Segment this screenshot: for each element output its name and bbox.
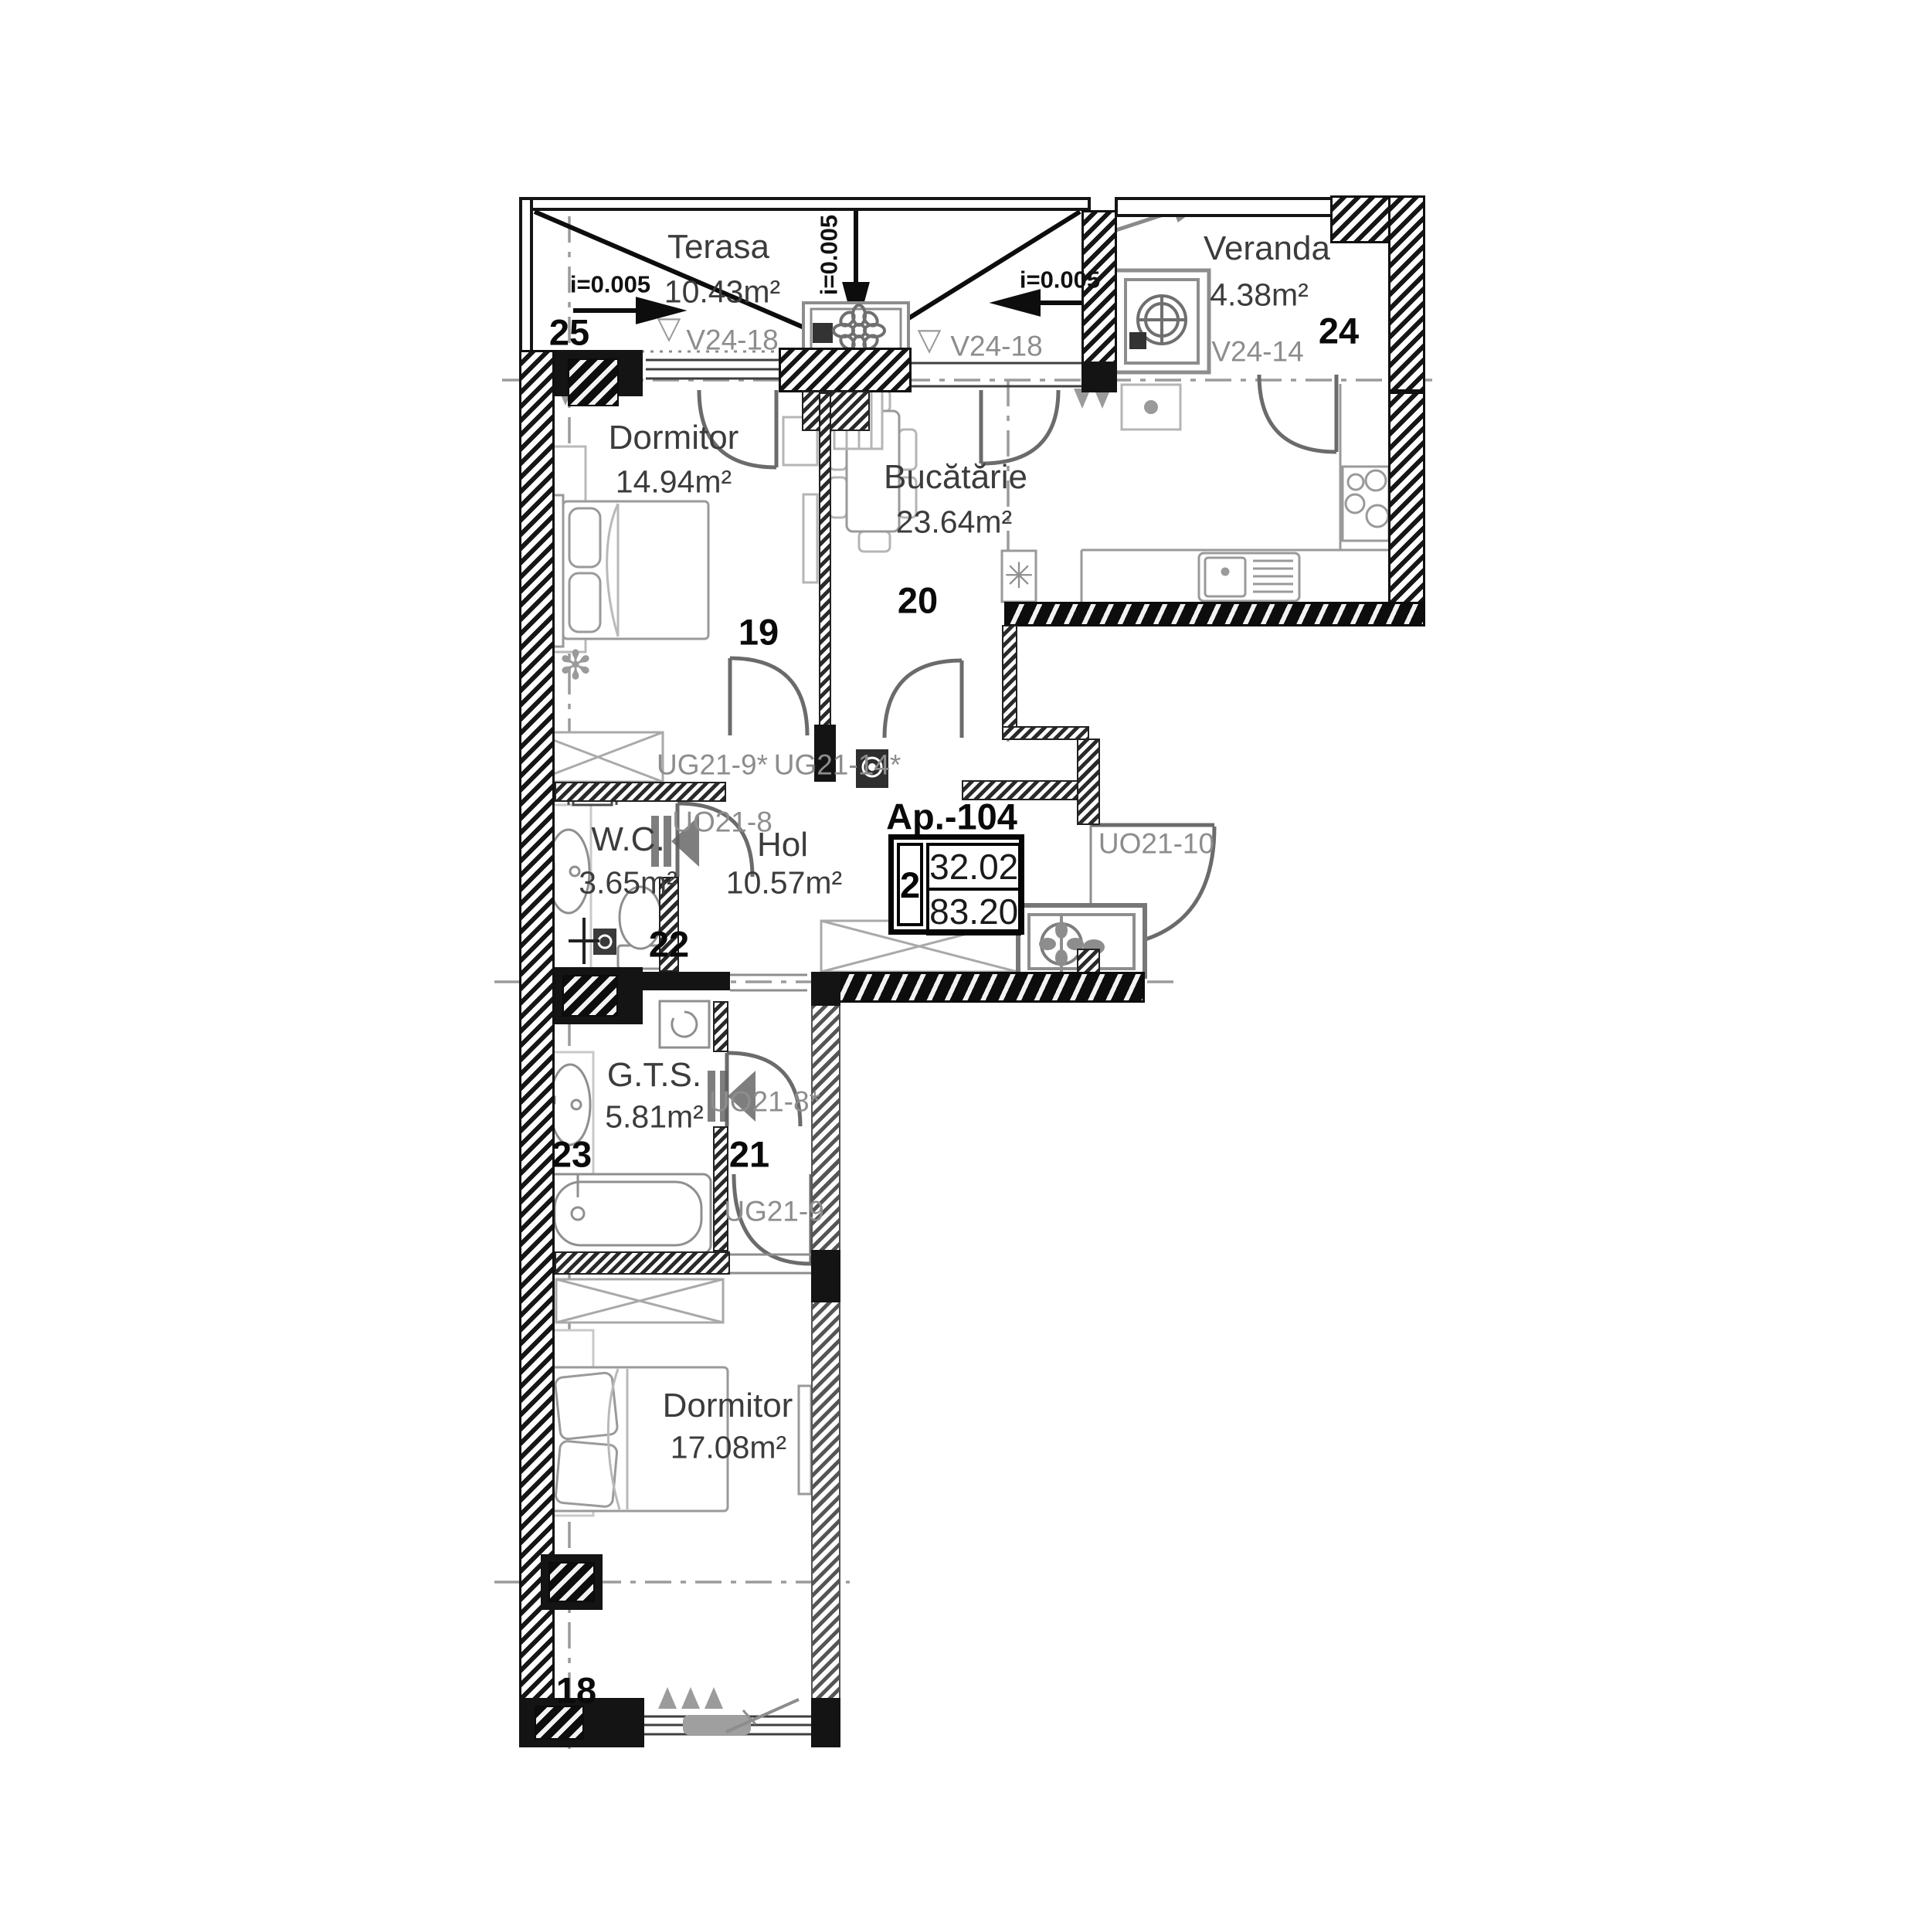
terasa-name: Terasa: [667, 230, 769, 264]
mirror-dormitor18: [799, 1386, 811, 1494]
bucatarie-name: Bucătărie: [884, 460, 1027, 494]
veranda-name: Veranda: [1204, 232, 1330, 266]
terasa-parapet-top: [519, 197, 1091, 211]
dormitor18-area: 17.08m²: [671, 1432, 786, 1464]
slope-right: i=0.005: [1020, 268, 1100, 292]
slope-left: i=0.005: [570, 273, 650, 297]
terasa-window-right-label: V24-18: [950, 332, 1042, 361]
wall-corridor-right-cap1: [811, 972, 840, 1006]
wall-bottom-corner-core: [535, 1706, 584, 1740]
wall-corner-nw-core: [568, 358, 619, 406]
slope-middle: i=0.005: [817, 215, 841, 295]
wall-corridor-right-cap2: [811, 1250, 840, 1302]
apartment-info-box: 2 32.02 83.20: [888, 834, 1024, 935]
socket-box-icon: [1122, 385, 1180, 430]
bucatarie-area: 23.64m²: [896, 507, 1012, 538]
entrance-door-label: UO21-10: [1098, 830, 1214, 858]
dresser-dormitor18: [556, 1279, 723, 1323]
partition-19-20: [819, 392, 831, 728]
fridge-icon: ✳: [1004, 558, 1034, 593]
partition-gts-upper: [713, 1001, 728, 1052]
bucatarie-door-label: UG21-14*: [774, 751, 901, 779]
wall-bottom-corner-right: [811, 1698, 840, 1747]
dormitor18-door-label: UG21-9: [724, 1197, 824, 1226]
dormitor19-door-label: UG21-9*: [657, 751, 768, 779]
apartment-room-count: 2: [897, 843, 923, 926]
wall-left-exterior: [519, 350, 555, 1747]
corridor21-number: 21: [729, 1136, 769, 1173]
wc-name: W.C.: [591, 823, 664, 857]
stove: [1343, 467, 1389, 541]
terasa-window-left-label: V24-18: [686, 326, 778, 355]
terasa-parapet-left: [519, 197, 533, 368]
gts-number: 23: [552, 1136, 592, 1173]
plan-linework: [0, 0, 1932, 1932]
apartment-total-area: 83.20: [926, 888, 1021, 935]
wall-gts-south: [555, 1251, 730, 1275]
wall-north-pillar-inset: [802, 391, 870, 431]
apartment-title: Ap.-104: [886, 799, 1017, 835]
wall-kitchen-right: [1388, 392, 1425, 625]
wall-kitchen-south: [1004, 602, 1425, 626]
partition-gts-lower: [713, 1126, 728, 1251]
pillar-left-mid-core: [562, 975, 618, 1017]
terasa-area: 10.43m²: [664, 277, 780, 308]
hol-name: Hol: [757, 828, 808, 862]
wall-terasa-veranda-cap: [1081, 362, 1117, 392]
dormitor19-name: Dormitor: [609, 421, 739, 455]
floor-plan: Terasa 10.43m² 25 i=0.005 i=0.005 i=0.00…: [0, 0, 1932, 1932]
bucatarie-number: 20: [898, 582, 938, 619]
veranda-window-label: V24-14: [1211, 338, 1303, 366]
desk-dormitor19: [783, 417, 817, 582]
wc-number: 22: [649, 926, 689, 963]
dormitor19-number: 19: [739, 614, 779, 650]
gts-name: G.T.S.: [607, 1058, 701, 1092]
wall-north-pillar: [779, 348, 912, 392]
level-marker-left: ▽: [657, 313, 681, 344]
wall-kitchen-south-left: [1002, 625, 1017, 733]
pillar-left-lower-core: [548, 1562, 595, 1602]
terasa-number: 25: [549, 314, 589, 351]
dormitor18-name: Dormitor: [663, 1389, 793, 1423]
veranda-area: 4.38m²: [1210, 280, 1309, 311]
hol-area: 10.57m²: [726, 868, 842, 899]
wall-wc-top: [555, 782, 726, 802]
veranda-washing-machine: [1115, 270, 1209, 372]
plant-icon: ✻: [559, 646, 593, 686]
gts-washing-machine: [660, 1001, 709, 1047]
wall-entrance-upper: [1077, 739, 1100, 825]
kitchen-sink: [1199, 553, 1299, 601]
dormitor19-area: 14.94m²: [616, 467, 732, 498]
wall-hol-south-band: [834, 972, 1145, 1003]
gts-bathtub: [545, 1174, 711, 1253]
wc-area: 3.65m²: [579, 868, 677, 899]
apartment-useful-area: 32.02: [926, 843, 1021, 891]
dormitor18-number: 18: [556, 1672, 596, 1709]
wall-wc-south-thin: [641, 972, 730, 990]
gts-area: 5.81m²: [605, 1102, 704, 1133]
level-marker-right: ▽: [918, 324, 942, 355]
veranda-number: 24: [1319, 313, 1359, 349]
wall-veranda-right: [1388, 195, 1425, 392]
gts-door-label: UO21-8*: [709, 1088, 820, 1116]
veranda-parapet-top: [1115, 197, 1337, 217]
